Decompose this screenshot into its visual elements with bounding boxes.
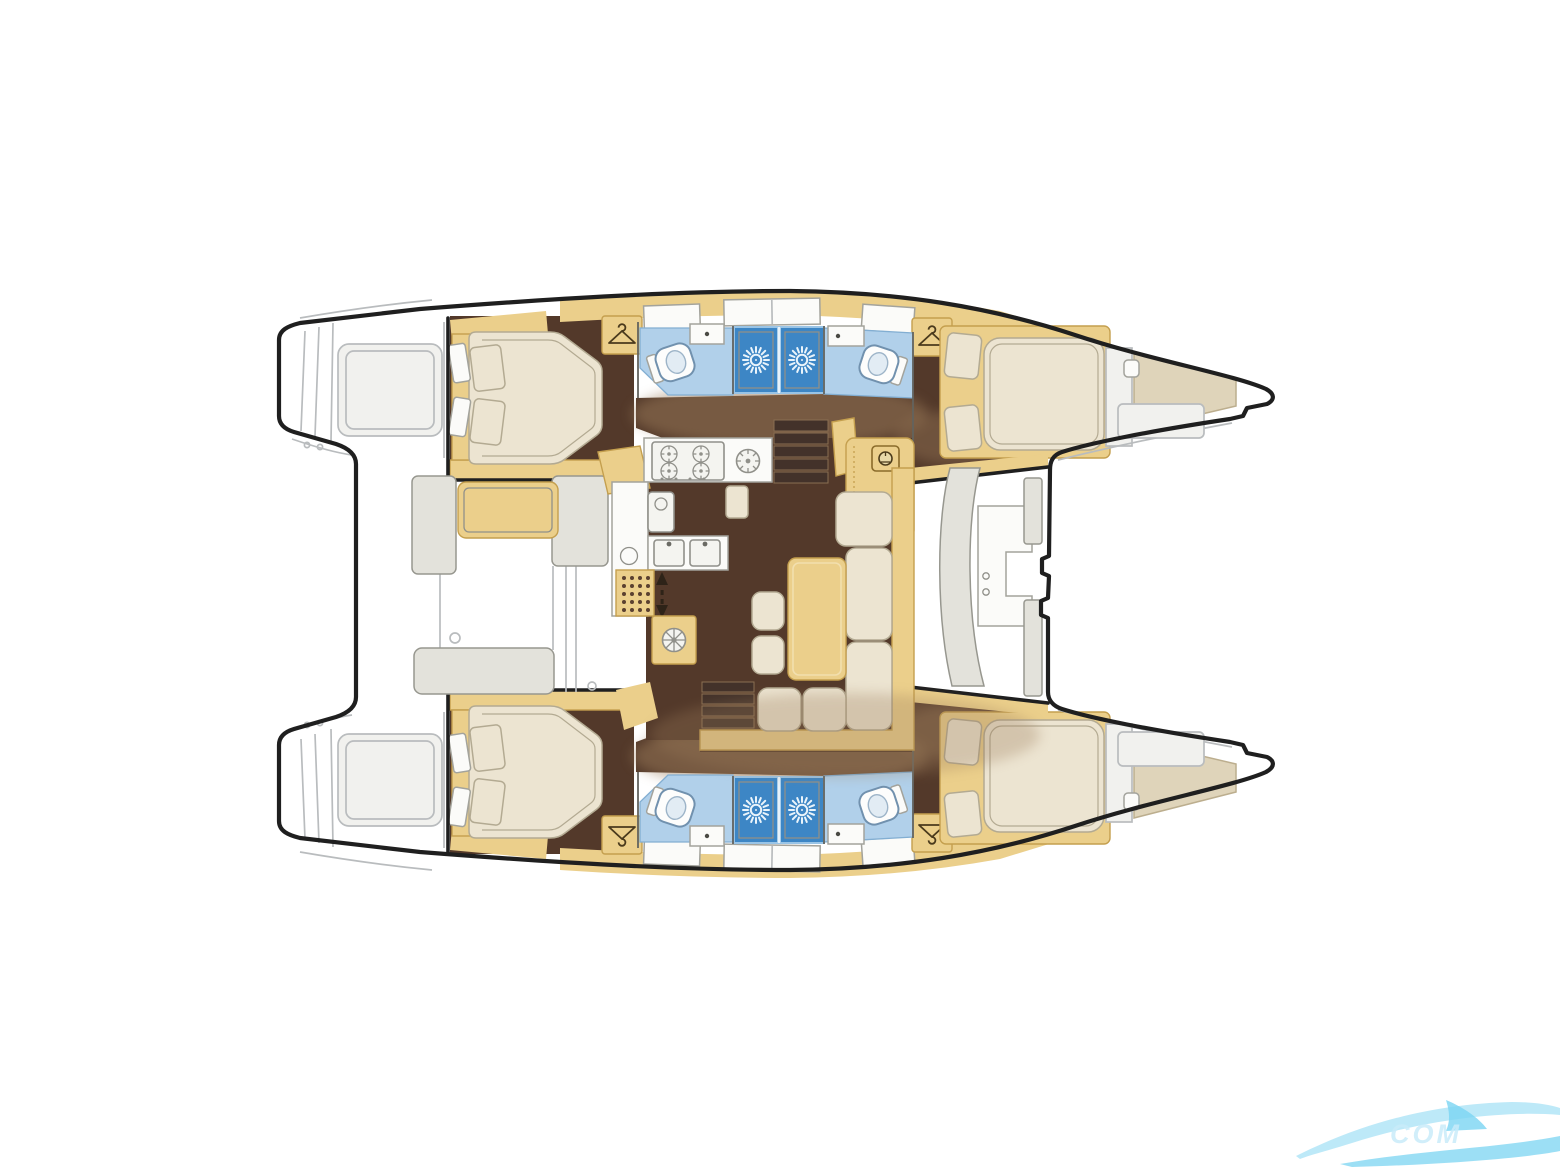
ottoman bbox=[752, 636, 784, 674]
door-panel bbox=[1024, 478, 1042, 544]
seat bbox=[726, 486, 748, 518]
pillow bbox=[944, 332, 982, 379]
sink-counter bbox=[828, 326, 864, 346]
aux-burner bbox=[737, 450, 760, 473]
pillow bbox=[469, 344, 505, 391]
floor-plan-page: COM bbox=[0, 0, 1560, 1170]
vent-cabinet bbox=[652, 616, 696, 664]
hull-hatch bbox=[861, 304, 915, 334]
aft-cockpit bbox=[412, 476, 608, 694]
cockpit-bench bbox=[414, 648, 554, 694]
double-bed-mattress bbox=[984, 338, 1104, 450]
foredeck-hatch bbox=[1118, 404, 1204, 438]
sofa-cushion bbox=[836, 492, 892, 546]
shower-stall bbox=[779, 327, 824, 393]
pillow bbox=[944, 404, 982, 451]
stove bbox=[652, 442, 724, 480]
deck-shadow bbox=[650, 693, 1040, 777]
bathroom-head bbox=[824, 326, 913, 398]
salon-table bbox=[788, 558, 846, 680]
cockpit-bench bbox=[552, 476, 608, 566]
ottoman bbox=[752, 592, 784, 630]
bathroom-head bbox=[640, 324, 733, 395]
pillow bbox=[469, 398, 505, 445]
floor-plan-drawing: COM bbox=[0, 0, 1560, 1170]
vent-grille bbox=[616, 570, 654, 616]
pillow bbox=[1124, 360, 1139, 377]
cockpit-bench bbox=[412, 476, 456, 574]
cockpit-table bbox=[458, 482, 558, 538]
double-sink bbox=[648, 536, 728, 570]
watermark-text: COM bbox=[1390, 1119, 1462, 1149]
sofa-cushion bbox=[846, 548, 892, 640]
wardrobe bbox=[602, 316, 642, 354]
watermark: COM bbox=[1296, 1100, 1560, 1167]
shower-stall bbox=[734, 327, 778, 393]
transom-steps bbox=[292, 300, 444, 458]
forward-seat bbox=[940, 468, 1042, 696]
